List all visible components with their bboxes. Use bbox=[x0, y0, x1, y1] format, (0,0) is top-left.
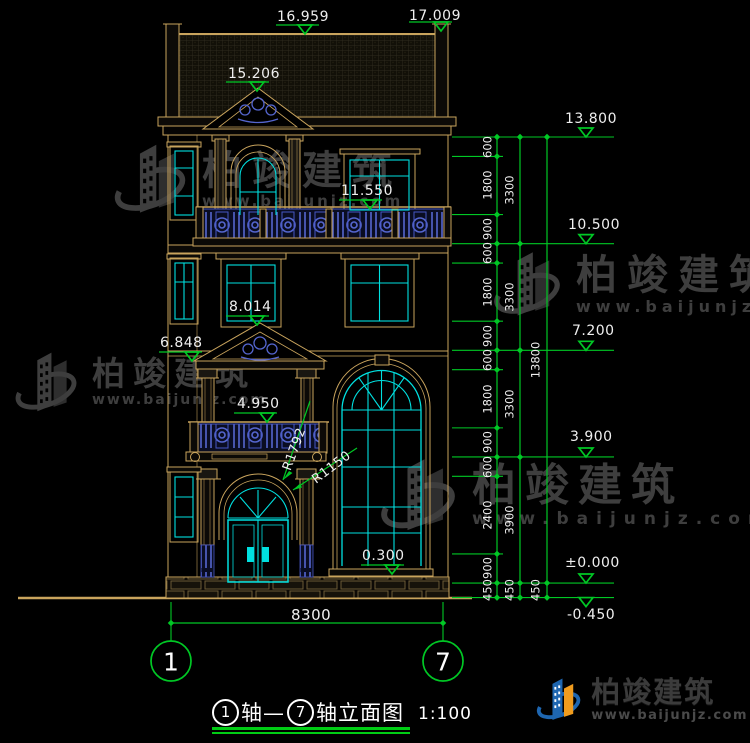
elev-label-ridge-right: 17.009 bbox=[409, 9, 461, 23]
elev-label-neg450: -0.450 bbox=[567, 608, 615, 622]
column-pedestal-right bbox=[300, 545, 313, 577]
brand-logo-name: 柏竣建筑 bbox=[591, 677, 748, 709]
watermark-logo-icon bbox=[108, 136, 192, 224]
title-underline bbox=[212, 727, 410, 730]
watermark-logo-icon bbox=[10, 345, 82, 421]
dim-chain-label: 900 bbox=[482, 431, 494, 453]
dim-chain-label: 1800 bbox=[482, 171, 494, 200]
dim-chain-label: 3300 bbox=[504, 282, 516, 311]
dim-chain-label: 600 bbox=[482, 242, 494, 264]
elev-label-window2f: 8.014 bbox=[229, 300, 272, 314]
entrance-arch bbox=[219, 474, 297, 540]
top-pediment bbox=[203, 88, 313, 129]
column-pedestal-left bbox=[201, 545, 214, 577]
window-sill bbox=[329, 569, 433, 576]
axis-bubble-7: 7 bbox=[435, 650, 451, 675]
dim-chain-label: 600 bbox=[482, 349, 494, 371]
watermark-left: 柏竣建筑 www.baijunjz.com bbox=[10, 345, 267, 421]
watermark-brand: 柏竣建筑 bbox=[576, 254, 750, 297]
balcony-1f-slab bbox=[186, 452, 326, 461]
elev-label-zero: ±0.000 bbox=[565, 556, 620, 570]
eave-band bbox=[158, 117, 456, 126]
axis-bubble-1: 1 bbox=[163, 650, 179, 675]
watermark-top: 柏竣建筑 www.baijunjz.com bbox=[108, 136, 403, 224]
dim-chain-label: 3900 bbox=[504, 505, 516, 534]
dim-chain-label: 900 bbox=[482, 325, 494, 347]
watermark-brand: 柏竣建筑 bbox=[472, 463, 750, 509]
elev-label-left2f: 6.848 bbox=[160, 336, 203, 350]
dim-chain-label: 13800 bbox=[530, 342, 542, 379]
title-axis-left-bubble: 1 bbox=[212, 699, 239, 726]
dim-chain-label: 900 bbox=[482, 218, 494, 240]
dim-chain-label: 450 bbox=[530, 579, 542, 601]
brand-logo-icon bbox=[534, 667, 583, 733]
radius-label-inner: R1150 bbox=[310, 449, 353, 486]
watermark-url: www.baijunjz.com bbox=[576, 297, 750, 316]
watermark-logo-icon bbox=[488, 244, 566, 326]
keystone bbox=[375, 355, 389, 365]
entrance-door bbox=[228, 520, 288, 582]
brand-logo: 柏竣建筑 www.baijunjz.com bbox=[534, 660, 748, 740]
watermark-brand: 柏竣建筑 bbox=[92, 357, 267, 392]
dim-chain-label: 1800 bbox=[482, 277, 494, 306]
elev-label-balcony3f: 11.550 bbox=[341, 184, 393, 198]
title-segment-a: 轴— bbox=[241, 697, 285, 727]
dim-chain-label: 450 bbox=[482, 579, 494, 601]
stone-base bbox=[166, 577, 449, 598]
dim-chain-label: 450 bbox=[504, 579, 516, 601]
roof-tiles bbox=[178, 34, 436, 117]
brand-logo-url: www.baijunjz.com bbox=[591, 708, 748, 723]
dim-chain-label: 600 bbox=[482, 136, 494, 158]
title-segment-b: 轴立面图 bbox=[316, 697, 404, 727]
elev-label-10500: 10.500 bbox=[568, 218, 620, 232]
elev-label-entrance: 0.300 bbox=[362, 549, 405, 563]
dim-chain-label: 600 bbox=[482, 456, 494, 478]
watermark-right: 柏竣建筑 www.baijunjz.com bbox=[488, 244, 750, 326]
balcony-3f-slab bbox=[193, 238, 451, 246]
title-scale: 1:100 bbox=[418, 704, 472, 724]
elev-label-7200: 7.200 bbox=[572, 324, 615, 338]
dim-chain-label: 3300 bbox=[504, 176, 516, 205]
elev-label-ridge-left: 16.959 bbox=[277, 10, 329, 24]
dim-chain-label: 900 bbox=[482, 557, 494, 579]
elev-label-pediment: 15.206 bbox=[228, 67, 280, 81]
elev-label-13800: 13.800 bbox=[565, 112, 617, 126]
dim-chain-label: 2400 bbox=[482, 501, 494, 530]
roof-post-left bbox=[166, 24, 179, 117]
floor-band bbox=[168, 245, 448, 253]
title-axis-right-bubble: 7 bbox=[287, 699, 314, 726]
window-2f-a bbox=[221, 259, 281, 327]
radius-label-outer: R1792 bbox=[281, 426, 308, 472]
overall-width-label: 8300 bbox=[291, 608, 331, 623]
elev-label-balcony1f: 4.950 bbox=[237, 397, 280, 411]
title-underline2 bbox=[212, 732, 410, 734]
watermark-logo-icon bbox=[374, 450, 462, 542]
watermark-lower: 柏竣建筑 www.baijunjz.com bbox=[374, 450, 750, 542]
cad-elevation-drawing: 柏竣建筑 www.baijunjz.com 柏竣建筑 www.baijunjz.… bbox=[0, 0, 750, 743]
dim-chain-label: 3300 bbox=[504, 389, 516, 418]
window-2f-b bbox=[345, 259, 414, 327]
dim-chain-label: 1800 bbox=[482, 384, 494, 413]
roof-post-right bbox=[435, 24, 448, 117]
window-1f-left bbox=[170, 472, 198, 542]
window-2f-left bbox=[170, 258, 198, 324]
elev-label-3900: 3.900 bbox=[570, 430, 613, 444]
drawing-title: 1 轴— 7 轴立面图 1:100 bbox=[210, 697, 472, 727]
